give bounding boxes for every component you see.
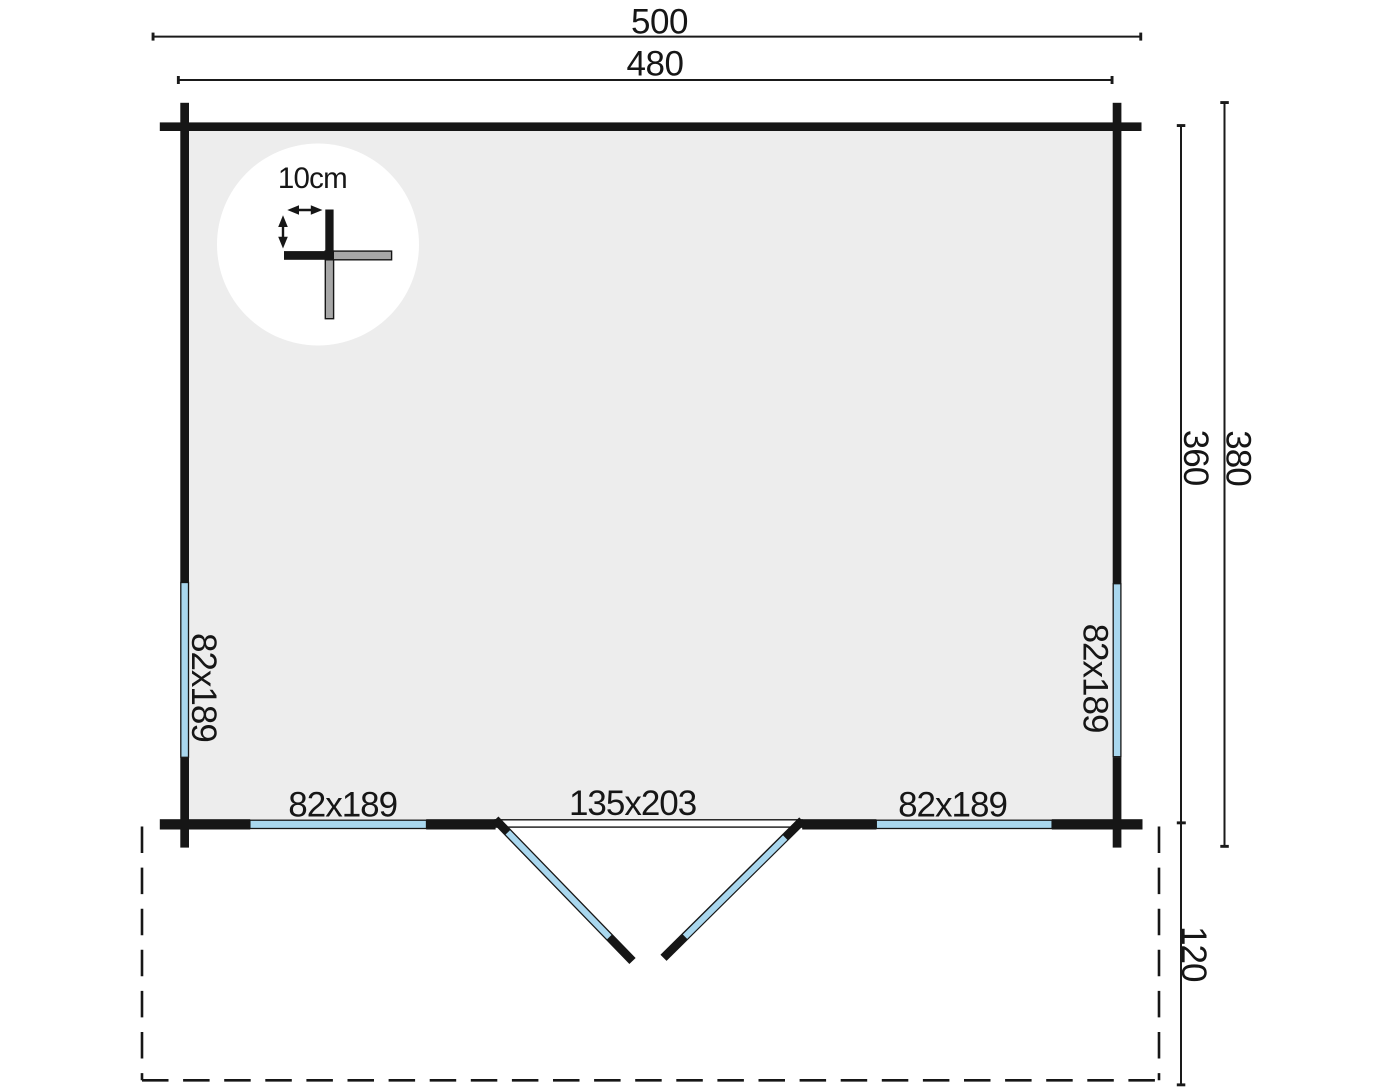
svg-text:360: 360 — [1176, 430, 1215, 486]
svg-text:380: 380 — [1219, 430, 1258, 486]
svg-text:82x189: 82x189 — [288, 786, 397, 825]
svg-text:10cm: 10cm — [278, 162, 347, 195]
svg-text:82x189: 82x189 — [1076, 624, 1115, 733]
svg-text:500: 500 — [631, 3, 688, 42]
svg-text:120: 120 — [1174, 926, 1213, 982]
svg-text:135x203: 135x203 — [569, 784, 696, 823]
svg-text:82x189: 82x189 — [898, 786, 1007, 825]
svg-text:480: 480 — [627, 45, 684, 84]
svg-text:82x189: 82x189 — [184, 633, 223, 742]
